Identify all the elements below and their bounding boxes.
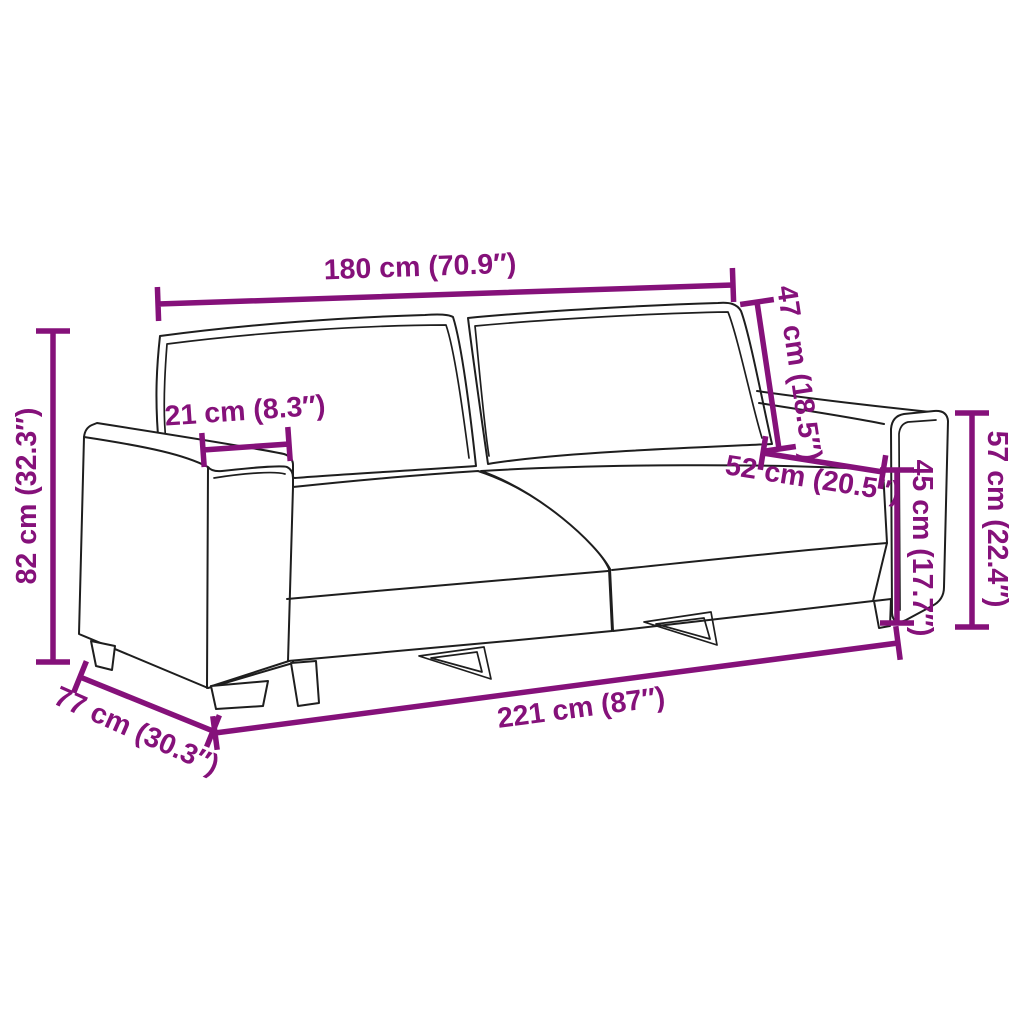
base-left-foot bbox=[291, 661, 319, 706]
dim-label-overall-height: 82 cm (32.3″) bbox=[11, 408, 43, 585]
dim-label-armrest-height: 57 cm (22.4″) bbox=[981, 431, 1013, 608]
left-armrest-front-foot bbox=[211, 681, 268, 709]
diagram-canvas: 180 cm (70.9″) 47 cm (18.5″) 21 cm (8.3″… bbox=[0, 0, 1024, 1024]
left-armrest-back-foot bbox=[91, 641, 115, 670]
dim-overall-height: 82 cm (32.3″) bbox=[11, 331, 70, 662]
sofa-dimension-diagram: 180 cm (70.9″) 47 cm (18.5″) 21 cm (8.3″… bbox=[0, 0, 1024, 1024]
sofa-line-art bbox=[79, 303, 948, 709]
metal-leg-left bbox=[419, 647, 491, 679]
dim-label-seat-height: 45 cm (17.7″) bbox=[906, 460, 938, 637]
dim-armrest-height: 57 cm (22.4″) bbox=[955, 413, 1013, 627]
dim-label-overall-width: 221 cm (87″) bbox=[495, 681, 667, 735]
dim-label-overall-depth: 77 cm (30.3″) bbox=[49, 680, 224, 781]
back-cushion-right bbox=[468, 303, 772, 464]
dim-label-top-width: 180 cm (70.9″) bbox=[323, 248, 517, 287]
